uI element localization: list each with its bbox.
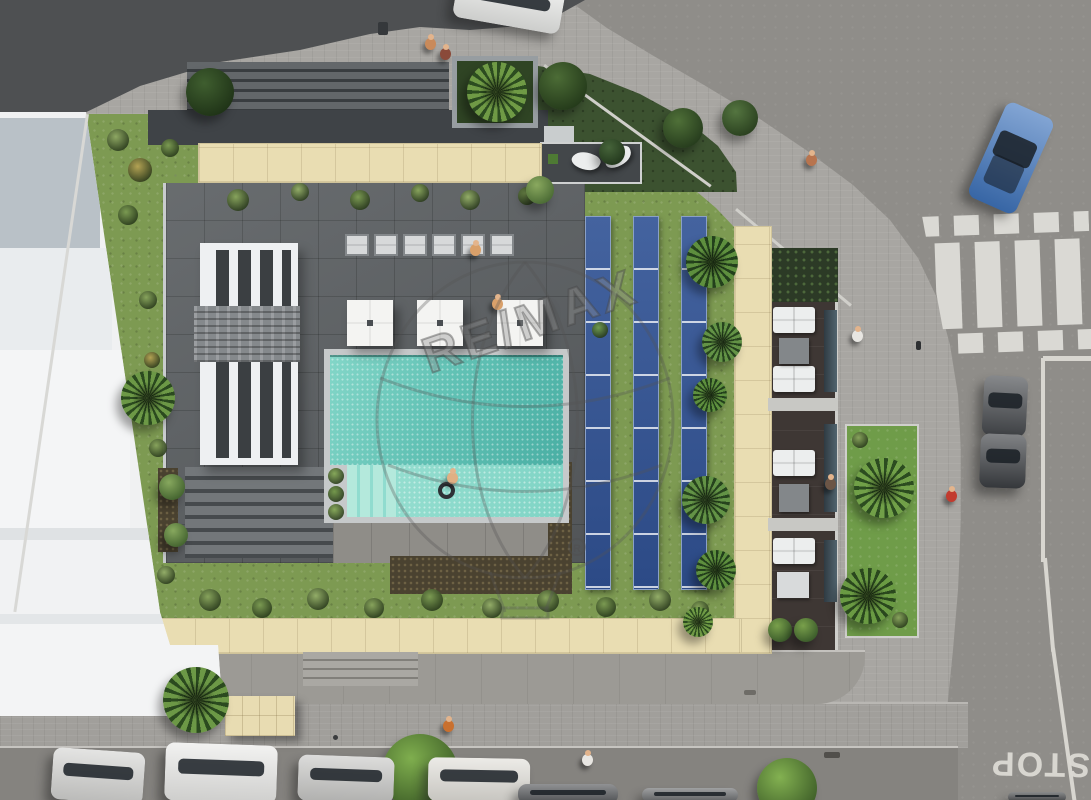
- sun-lounger: [374, 234, 398, 256]
- palm-tree: [854, 458, 914, 518]
- outdoor-sofa: [773, 450, 815, 476]
- parked-car: [164, 742, 278, 800]
- bush: [526, 176, 554, 204]
- person: [492, 294, 503, 310]
- palm-tree: [683, 607, 713, 637]
- square-umbrella: [347, 300, 393, 346]
- person-head: [949, 486, 955, 492]
- person-head: [446, 716, 452, 722]
- skylight-glass: [824, 424, 837, 512]
- person: [852, 326, 863, 342]
- crosswalk-square: [1074, 211, 1091, 232]
- bush: [722, 100, 758, 136]
- swimming-pool-deep: [330, 355, 563, 465]
- roof-edge: [0, 528, 152, 540]
- person-head: [443, 44, 449, 50]
- parked-car: [518, 784, 618, 800]
- outdoor-sofa: [773, 307, 815, 333]
- sun-lounger: [345, 234, 369, 256]
- trash-bin: [378, 22, 388, 35]
- person-head: [809, 150, 815, 156]
- person-head: [450, 468, 456, 474]
- sun-lounger: [403, 234, 427, 256]
- person-head: [473, 240, 479, 246]
- car-windshield: [440, 770, 518, 783]
- person: [582, 750, 593, 766]
- garden-shrub: [649, 589, 671, 611]
- garden-shrub: [592, 322, 608, 338]
- garden-shrub: [596, 597, 616, 617]
- garden-shrub: [892, 612, 908, 628]
- garden-shrub: [252, 598, 272, 618]
- parked-car: [297, 754, 395, 800]
- swim-ring-float: [438, 482, 455, 499]
- balcony-wall: [768, 398, 838, 411]
- car-windshield: [1015, 795, 1059, 798]
- outdoor-sofa: [773, 366, 815, 392]
- garden-shrub: [421, 589, 443, 611]
- garden-shrub: [460, 190, 480, 210]
- bush: [599, 139, 625, 165]
- beige-tile-path: [160, 618, 742, 654]
- drain-grate: [744, 690, 756, 695]
- dark-car: [979, 433, 1027, 489]
- crosswalk-square: [1078, 329, 1091, 350]
- garden-shrub: [149, 439, 167, 457]
- person: [447, 468, 458, 484]
- person-head: [428, 34, 434, 40]
- garden-shrub: [411, 184, 429, 202]
- bush: [768, 618, 792, 642]
- garden-shrub: [118, 205, 138, 225]
- person-head: [495, 294, 501, 300]
- car-windshield: [178, 759, 264, 777]
- square-umbrella: [417, 300, 463, 346]
- balcony-wall: [768, 518, 838, 531]
- garden-shrub: [199, 589, 221, 611]
- entrance-canopy: [225, 696, 295, 736]
- parked-car: [1008, 792, 1066, 800]
- roof-section: [0, 350, 130, 528]
- bush: [794, 618, 818, 642]
- car-windshield: [985, 449, 1020, 464]
- garden-shrub: [328, 468, 344, 484]
- beige-tile-path: [734, 226, 772, 654]
- garden-shrub: [161, 139, 179, 157]
- lane-marking: [1041, 358, 1045, 562]
- drain-grate: [824, 752, 840, 758]
- bush: [159, 474, 185, 500]
- dark-car: [981, 375, 1028, 437]
- garden-shrub: [364, 598, 384, 618]
- palm-tree: [121, 371, 175, 425]
- person: [443, 716, 454, 732]
- garden-shrub: [328, 486, 344, 502]
- beige-tile-path: [198, 143, 542, 183]
- square-umbrella: [497, 300, 543, 346]
- car-windshield: [654, 792, 727, 796]
- stop-road-marking: STOP: [986, 743, 1091, 785]
- aerial-render-scene: STOP: [0, 0, 1091, 800]
- pool-steps: [347, 465, 397, 517]
- palm-tree: [693, 378, 727, 412]
- palm-tree: [686, 236, 738, 288]
- person: [946, 486, 957, 502]
- crosswalk-square: [994, 213, 1020, 234]
- palm-tree: [163, 667, 229, 733]
- car-windshield: [309, 768, 382, 782]
- coffee-table: [779, 484, 809, 512]
- deck-stairs: [185, 467, 333, 558]
- garden-shrub: [291, 183, 309, 201]
- garden-shrub: [537, 590, 559, 612]
- car-windshield: [988, 392, 1022, 409]
- palm-tree: [467, 62, 527, 122]
- bush: [164, 523, 188, 547]
- garden-shrub: [307, 588, 329, 610]
- solar-panel-strip: [633, 216, 659, 590]
- garden-shrub: [227, 189, 249, 211]
- crosswalk-bar: [1014, 240, 1042, 327]
- garden-shrub: [144, 352, 160, 368]
- stone-accent-wall: [194, 306, 300, 362]
- skylight-glass: [824, 310, 837, 392]
- garden-shrub: [128, 158, 152, 182]
- palm-tree: [840, 568, 896, 624]
- mini-planter: [548, 154, 558, 164]
- crosswalk-bar: [975, 241, 1003, 328]
- sun-lounger: [490, 234, 514, 256]
- bush: [539, 62, 587, 110]
- person: [425, 34, 436, 50]
- sun-lounger: [432, 234, 456, 256]
- roof-edge: [0, 614, 170, 624]
- garden-shrub: [107, 129, 129, 151]
- crosswalk-square: [1034, 212, 1060, 233]
- car-windshield: [530, 790, 606, 795]
- bollard: [333, 735, 338, 740]
- garden-shrub: [852, 432, 868, 448]
- terrace-bench: [544, 126, 574, 142]
- balcony-planter: [768, 248, 838, 304]
- person: [825, 474, 836, 490]
- bush: [663, 108, 703, 148]
- crosswalk-square: [958, 333, 984, 354]
- coffee-table: [777, 572, 809, 598]
- parked-car: [428, 757, 531, 800]
- garden-shrub: [350, 190, 370, 210]
- crosswalk-square: [998, 331, 1024, 352]
- outdoor-sofa: [773, 538, 815, 564]
- car-windshield: [63, 762, 134, 780]
- person-head: [828, 474, 834, 480]
- garden-shrub: [482, 598, 502, 618]
- person-head: [585, 750, 591, 756]
- parked-car: [50, 747, 145, 800]
- solar-panel-strip: [585, 216, 611, 590]
- person: [440, 44, 451, 60]
- palm-tree: [696, 550, 736, 590]
- terrace-stairs: [303, 652, 418, 686]
- palm-tree: [702, 322, 742, 362]
- bollard: [916, 341, 921, 350]
- coffee-table: [779, 338, 809, 364]
- skylight-glass: [824, 540, 837, 602]
- crosswalk-square: [954, 215, 980, 236]
- crosswalk-bar: [1054, 238, 1082, 325]
- crosswalk-square: [1038, 330, 1064, 351]
- parked-car: [642, 788, 738, 800]
- garden-shrub: [328, 504, 344, 520]
- lane-marking: [1043, 356, 1091, 361]
- person: [806, 150, 817, 166]
- mulch-planting-strip: [390, 556, 572, 594]
- person: [470, 240, 481, 256]
- person-head: [855, 326, 861, 332]
- garden-shrub: [157, 566, 175, 584]
- garden-shrub: [139, 291, 157, 309]
- palm-tree: [682, 476, 730, 524]
- bush: [186, 68, 234, 116]
- car-windshield: [468, 0, 551, 12]
